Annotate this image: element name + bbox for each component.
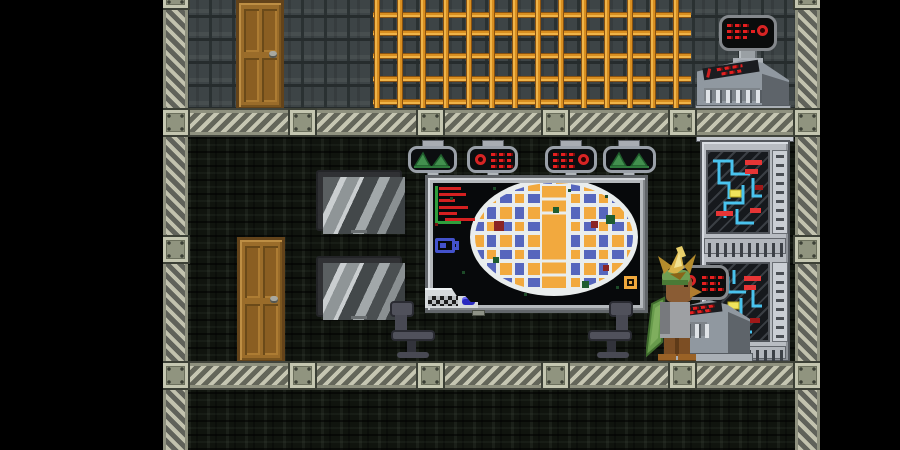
rivet-plate xyxy=(670,110,695,135)
map-screen xyxy=(433,183,640,305)
red-dial-icon xyxy=(578,154,589,165)
rivet-plate xyxy=(290,363,315,388)
door-panel xyxy=(245,246,260,298)
monitor-screen xyxy=(323,177,405,234)
door-upper[interactable] xyxy=(236,0,284,110)
door-lower[interactable] xyxy=(237,237,285,363)
pod-red-right xyxy=(545,146,597,173)
server-rack-vent xyxy=(704,238,786,254)
camera-lens-icon xyxy=(440,243,446,248)
hud-red-bar xyxy=(439,187,461,190)
rivet-plate xyxy=(795,110,820,135)
map-speck xyxy=(435,223,438,226)
chair-seat xyxy=(588,330,632,341)
red-readout-row xyxy=(721,69,741,75)
rivet-plate xyxy=(795,363,820,388)
red-readout-row xyxy=(491,165,513,168)
rivet-plate xyxy=(163,0,188,8)
console-screen xyxy=(719,15,777,51)
red-readout-row xyxy=(491,159,511,162)
rivet-plate xyxy=(290,110,315,135)
circuit-traces-icon xyxy=(708,152,768,232)
chair-left[interactable] xyxy=(388,299,438,362)
red-readout-row xyxy=(491,153,513,156)
door-handle-icon xyxy=(269,51,277,58)
rivet-plate xyxy=(418,110,443,135)
red-readout-row xyxy=(702,282,720,285)
pod-green-right xyxy=(603,146,656,173)
map-speck xyxy=(524,293,527,296)
monitor-logo xyxy=(351,316,367,319)
hud-red-bar xyxy=(445,218,475,221)
chair-base xyxy=(397,352,429,358)
red-readout-row xyxy=(553,159,573,162)
red-tick xyxy=(706,68,711,77)
chair-right[interactable] xyxy=(585,299,635,362)
red-dial-icon xyxy=(757,25,768,36)
server-rack-panel xyxy=(706,150,770,234)
red-dial-icon xyxy=(475,154,486,165)
chair-post xyxy=(607,341,616,352)
red-readout-row xyxy=(553,165,575,168)
monitor-upper xyxy=(316,170,402,231)
game-viewport xyxy=(0,0,900,450)
server-rack-rail xyxy=(772,150,788,234)
hud-green-axis xyxy=(435,186,438,224)
door-panel xyxy=(262,58,277,102)
map-foot xyxy=(472,310,485,316)
planet-mosaic xyxy=(470,183,638,297)
rivet-plate xyxy=(795,0,820,8)
space-void-right xyxy=(820,0,900,450)
hud-red-bar xyxy=(439,212,457,215)
map-speck xyxy=(493,187,496,190)
rivet-plate xyxy=(795,237,820,262)
console-buttons[interactable] xyxy=(704,88,760,101)
rivet-plate xyxy=(670,363,695,388)
chair-back xyxy=(616,315,628,331)
red-readout-row xyxy=(553,153,575,156)
rivet-plate xyxy=(543,363,568,388)
avian-npc[interactable] xyxy=(646,246,704,364)
door-panel xyxy=(244,58,259,102)
chair-back xyxy=(395,315,407,331)
rivet-plate xyxy=(418,363,443,388)
rivet-plate xyxy=(163,237,188,262)
green-waveform-icon xyxy=(411,149,454,170)
rivet-plate xyxy=(163,110,188,135)
door-panel xyxy=(245,304,260,355)
beam-lower xyxy=(163,363,820,388)
lattice-grid xyxy=(373,0,691,110)
waypoint-marker-icon xyxy=(624,276,637,289)
cave-wall-basement xyxy=(188,388,795,450)
map-speck xyxy=(568,189,571,192)
door-panel xyxy=(263,246,278,298)
green-waveform-icon xyxy=(606,149,653,170)
door-panel xyxy=(262,9,277,52)
door-handle-icon xyxy=(270,296,278,303)
map-speck xyxy=(616,286,619,289)
door-panel xyxy=(263,304,278,355)
map-keypad-icon xyxy=(428,296,458,306)
server-rack-rail xyxy=(772,262,788,342)
red-readout-row xyxy=(702,276,724,279)
pod-red-left xyxy=(467,146,518,173)
red-readout-row xyxy=(727,24,751,27)
hud-green-baseline xyxy=(435,221,461,224)
hud-red-bar xyxy=(439,206,468,209)
chair-base xyxy=(597,352,629,358)
map-speck xyxy=(605,195,608,198)
hud-red-bar xyxy=(439,193,466,196)
chair-seat xyxy=(391,330,435,341)
map-speck xyxy=(462,271,465,274)
space-void-left xyxy=(0,0,163,450)
red-readout-row xyxy=(702,288,724,291)
pod-green-left xyxy=(408,146,457,173)
red-readout-row xyxy=(727,36,747,39)
camera-mount-icon xyxy=(452,241,459,250)
chair-post xyxy=(407,341,416,352)
map-speck xyxy=(450,197,453,200)
monitor-logo xyxy=(351,230,367,233)
console-upper[interactable] xyxy=(695,14,791,111)
rivet-plate xyxy=(543,110,568,135)
door-panel xyxy=(244,9,259,52)
rivet-plate xyxy=(163,363,188,388)
red-readout-row xyxy=(727,30,755,33)
beam-upper xyxy=(163,110,820,135)
